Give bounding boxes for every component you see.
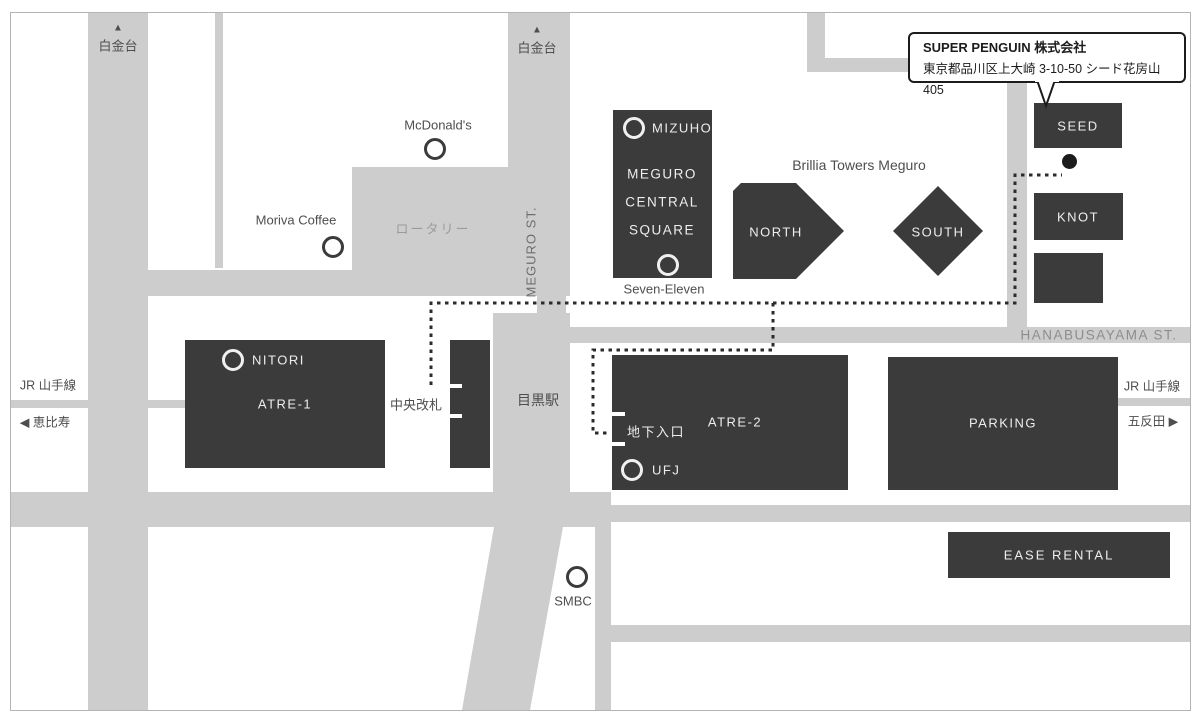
company-name: SUPER PENGUIN 株式会社 xyxy=(923,37,1184,59)
building-station-east xyxy=(450,340,490,468)
underground-entrance-label: 地下入口 xyxy=(627,422,685,441)
mcs-name-line1: MEGURO xyxy=(627,167,697,182)
road-diagonal xyxy=(462,527,563,710)
moriva-marker-icon xyxy=(322,236,344,258)
nitori-marker-icon xyxy=(222,349,244,371)
seed-label: SEED xyxy=(1057,119,1098,134)
shirokanedai-left-arrow-icon: ▲ xyxy=(113,23,123,34)
gate-tick-icon xyxy=(612,412,625,416)
hanabusayama-st-label: HANABUSAYAMA ST. xyxy=(1020,328,1177,343)
access-map: ▲ 白金台 ▲ 白金台 McDonald's Moriva Coffee ロータ… xyxy=(0,0,1200,717)
seven-eleven-marker-icon xyxy=(657,254,679,276)
smbc-label: SMBC xyxy=(554,594,592,609)
knot-label: KNOT xyxy=(1057,210,1099,225)
jr-yamanote-left-label: JR 山手線 xyxy=(20,375,76,394)
shirokanedai-right-arrow-icon: ▲ xyxy=(532,25,542,36)
nitori-label: NITORI xyxy=(252,353,305,368)
shirokanedai-left-label: 白金台 xyxy=(98,36,137,55)
gate-tick-icon xyxy=(612,442,625,446)
central-gate-label: 中央改札 xyxy=(390,395,442,414)
destination-dot-icon xyxy=(1062,154,1077,169)
north-tower-label: NORTH xyxy=(749,225,802,240)
atre1-label: ATRE-1 xyxy=(258,397,312,412)
ease-rental-label: EASE RENTAL xyxy=(1004,548,1115,563)
to-ebisu-label: ◀ 恵比寿 xyxy=(20,412,71,431)
gate-tick-icon xyxy=(449,414,462,418)
smbc-marker-icon xyxy=(566,566,588,588)
callout-pointer-icon xyxy=(1034,80,1060,110)
shirokanedai-right-label: 白金台 xyxy=(517,38,556,57)
mcdonalds-label: McDonald's xyxy=(404,118,472,133)
building-unnamed xyxy=(1034,253,1103,303)
gate-tick-icon xyxy=(449,384,462,388)
mizuho-label: MIZUHO xyxy=(652,121,712,136)
mcs-name-line2: CENTRAL xyxy=(625,195,699,210)
seven-eleven-label: Seven-Eleven xyxy=(624,282,705,297)
rotary-label: ロータリー xyxy=(395,219,470,238)
parking-label: PARKING xyxy=(969,416,1037,431)
meguro-station-label: 目黒駅 xyxy=(517,390,559,410)
ufj-marker-icon xyxy=(621,459,643,481)
to-gotanda-label: 五反田 ▶ xyxy=(1128,411,1179,430)
meguro-st-label: MEGURO ST. xyxy=(524,207,539,298)
brillia-towers-label: Brillia Towers Meguro xyxy=(792,157,926,173)
ufj-label: UFJ xyxy=(652,463,680,478)
jr-yamanote-right-label: JR 山手線 xyxy=(1124,376,1180,395)
mcdonalds-marker-icon xyxy=(424,138,446,160)
south-tower-label: SOUTH xyxy=(912,225,965,240)
mcs-name-line3: SQUARE xyxy=(629,223,695,238)
company-callout: SUPER PENGUIN 株式会社 東京都品川区上大崎 3-10-50 シード… xyxy=(908,32,1186,83)
atre2-label: ATRE-2 xyxy=(708,415,762,430)
mizuho-marker-icon xyxy=(623,117,645,139)
moriva-coffee-label: Moriva Coffee xyxy=(256,213,337,228)
